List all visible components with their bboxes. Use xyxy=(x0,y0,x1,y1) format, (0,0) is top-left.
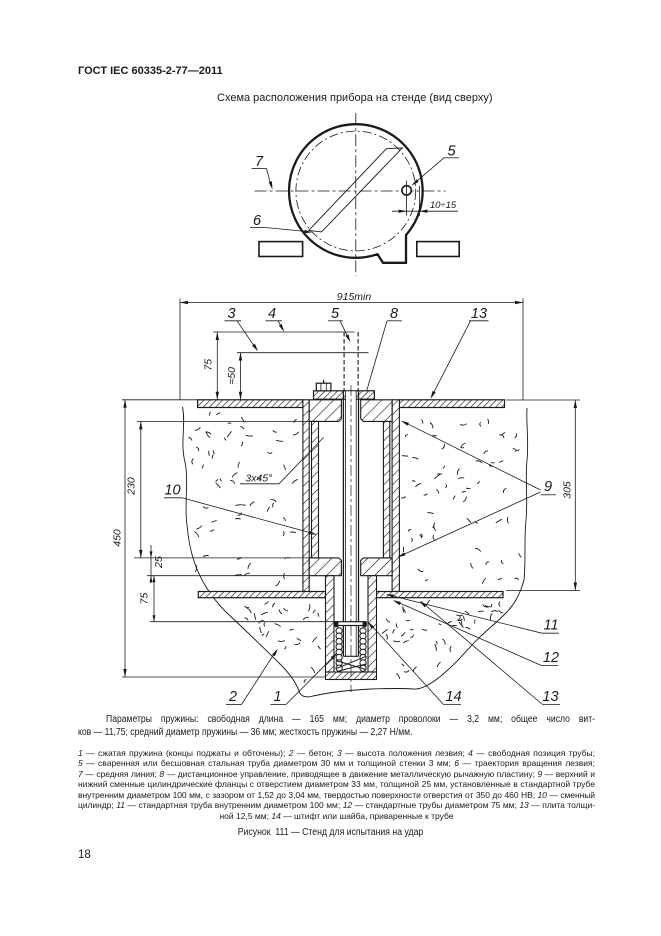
svg-text:75: 75 xyxy=(139,593,151,605)
svg-text:12: 12 xyxy=(543,650,559,666)
svg-text:450: 450 xyxy=(112,529,124,547)
svg-text:75: 75 xyxy=(203,359,215,371)
svg-text:1: 1 xyxy=(273,689,281,705)
svg-text:14: 14 xyxy=(445,689,461,705)
svg-text:6: 6 xyxy=(253,213,262,229)
svg-text:5: 5 xyxy=(447,144,456,160)
svg-text:13: 13 xyxy=(471,306,487,322)
svg-text:≈50: ≈50 xyxy=(226,367,238,385)
svg-text:230: 230 xyxy=(126,477,138,496)
svg-text:10: 10 xyxy=(164,483,180,499)
svg-text:915min: 915min xyxy=(337,291,372,303)
svg-text:25: 25 xyxy=(153,556,165,569)
svg-text:5: 5 xyxy=(331,306,340,322)
svg-text:11: 11 xyxy=(543,618,558,634)
svg-text:2: 2 xyxy=(228,689,237,705)
svg-text:10÷15: 10÷15 xyxy=(430,200,457,211)
svg-text:3x45°: 3x45° xyxy=(245,473,272,485)
svg-text:8: 8 xyxy=(390,306,398,322)
svg-text:305: 305 xyxy=(562,481,574,499)
svg-text:3: 3 xyxy=(227,306,235,322)
svg-text:4: 4 xyxy=(268,306,276,322)
svg-text:13: 13 xyxy=(542,689,558,705)
svg-text:9: 9 xyxy=(544,479,552,495)
svg-text:7: 7 xyxy=(255,154,264,170)
